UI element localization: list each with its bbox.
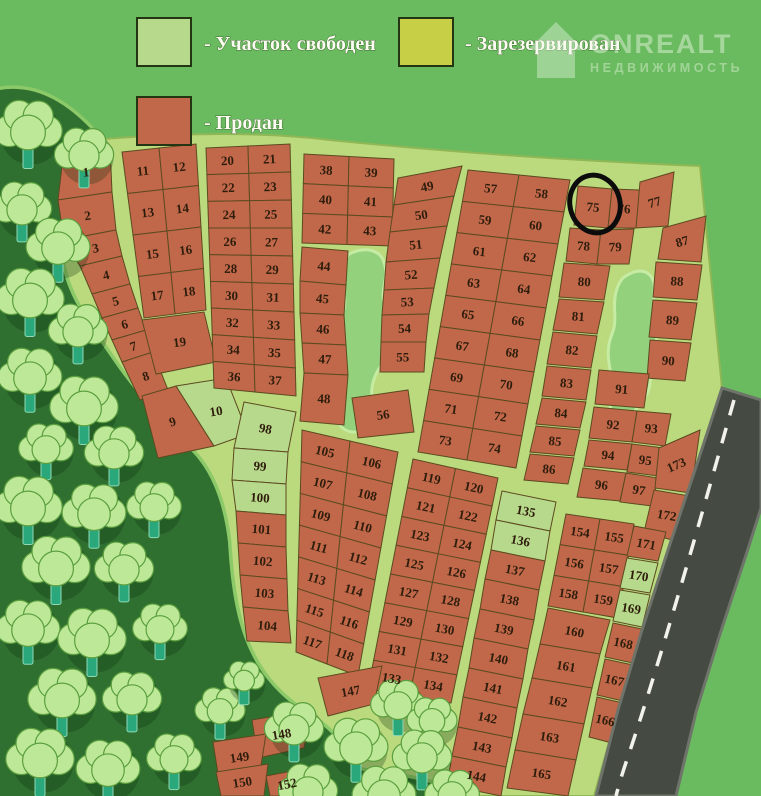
- plot-154[interactable]: [560, 514, 600, 550]
- legend-label-free: - Участок свободен: [204, 33, 376, 55]
- plot-28[interactable]: [210, 255, 252, 283]
- plot-62[interactable]: [502, 238, 558, 276]
- plot-92[interactable]: [589, 407, 637, 442]
- plot-82[interactable]: [547, 332, 597, 368]
- plot-56[interactable]: [352, 390, 414, 438]
- plot-103[interactable]: [240, 575, 288, 611]
- plot-102[interactable]: [238, 543, 287, 579]
- legend-swatch-sold: [137, 97, 191, 145]
- plot-47[interactable]: [302, 343, 348, 375]
- logo: ONREALT НЕДВИЖИМОСТЬ: [528, 22, 743, 78]
- plot-96[interactable]: [577, 468, 626, 501]
- plot-84[interactable]: [536, 398, 586, 428]
- plot-21[interactable]: [248, 144, 291, 173]
- plot-11[interactable]: [122, 148, 163, 194]
- plot-93[interactable]: [632, 411, 671, 446]
- plot-24[interactable]: [208, 201, 251, 228]
- logo-title: ONREALT: [590, 29, 733, 59]
- plot-37[interactable]: [254, 365, 296, 396]
- plot-61[interactable]: [451, 233, 507, 270]
- legend-label-sold: - Продан: [204, 112, 283, 134]
- plot-94[interactable]: [584, 440, 632, 470]
- plot-158[interactable]: [548, 575, 589, 612]
- plot-36[interactable]: [213, 361, 255, 392]
- plot-29[interactable]: [251, 255, 293, 284]
- plot-18[interactable]: [171, 269, 206, 315]
- plot-41[interactable]: [348, 186, 394, 217]
- plot-60[interactable]: [507, 207, 564, 244]
- plot-12[interactable]: [159, 144, 199, 190]
- plot-33[interactable]: [253, 310, 295, 340]
- plot-42[interactable]: [302, 213, 348, 244]
- plot-39[interactable]: [348, 157, 394, 189]
- plot-88[interactable]: [653, 262, 702, 300]
- plot-75[interactable]: [574, 186, 612, 228]
- plot-17[interactable]: [139, 273, 176, 319]
- plot-map: 1234567891011121314151617181920212223242…: [0, 0, 761, 796]
- plot-104[interactable]: [243, 607, 291, 643]
- plot-99[interactable]: [232, 448, 288, 484]
- plot-91[interactable]: [595, 370, 649, 408]
- plot-31[interactable]: [252, 283, 294, 312]
- legend-swatch-reserved: [399, 18, 453, 66]
- plot-156[interactable]: [554, 545, 594, 581]
- plot-32[interactable]: [211, 308, 253, 337]
- plot-43[interactable]: [347, 215, 393, 246]
- plot-23[interactable]: [249, 172, 292, 201]
- plot-51[interactable]: [386, 226, 447, 262]
- plot-40[interactable]: [303, 184, 349, 216]
- plot-54[interactable]: [381, 314, 429, 342]
- plot-48[interactable]: [300, 373, 348, 425]
- plot-19[interactable]: [142, 312, 216, 374]
- plot-45[interactable]: [300, 281, 346, 315]
- plot-52[interactable]: [384, 258, 440, 290]
- plot-30[interactable]: [210, 281, 252, 310]
- plot-46[interactable]: [300, 313, 346, 345]
- plot-101[interactable]: [236, 511, 286, 547]
- plot-13[interactable]: [128, 190, 168, 236]
- plot-34[interactable]: [212, 335, 254, 365]
- plot-83[interactable]: [542, 366, 591, 400]
- plot-90[interactable]: [647, 340, 691, 381]
- plot-27[interactable]: [250, 228, 292, 256]
- plot-55[interactable]: [380, 342, 426, 372]
- plot-81[interactable]: [553, 299, 604, 334]
- plot-89[interactable]: [649, 300, 697, 340]
- legend-swatch-free: [137, 18, 191, 66]
- plot-20[interactable]: [206, 146, 249, 175]
- plot-85[interactable]: [530, 426, 580, 456]
- plot-58[interactable]: [513, 175, 570, 212]
- plot-35[interactable]: [253, 337, 295, 368]
- plot-57[interactable]: [462, 170, 519, 207]
- logo-subtitle: НЕДВИЖИМОСТЬ: [590, 61, 743, 75]
- plot-16[interactable]: [167, 227, 204, 273]
- plot-100[interactable]: [232, 480, 286, 515]
- plot-15[interactable]: [133, 231, 171, 277]
- plot-38[interactable]: [303, 154, 349, 186]
- plot-14[interactable]: [163, 186, 201, 232]
- plot-25[interactable]: [250, 200, 292, 228]
- plot-80[interactable]: [559, 263, 610, 300]
- plot-26[interactable]: [209, 228, 251, 255]
- plot-22[interactable]: [207, 173, 250, 201]
- plot-53[interactable]: [382, 288, 434, 315]
- plot-86[interactable]: [524, 454, 574, 484]
- plot-59[interactable]: [457, 201, 513, 238]
- plot-44[interactable]: [300, 247, 348, 285]
